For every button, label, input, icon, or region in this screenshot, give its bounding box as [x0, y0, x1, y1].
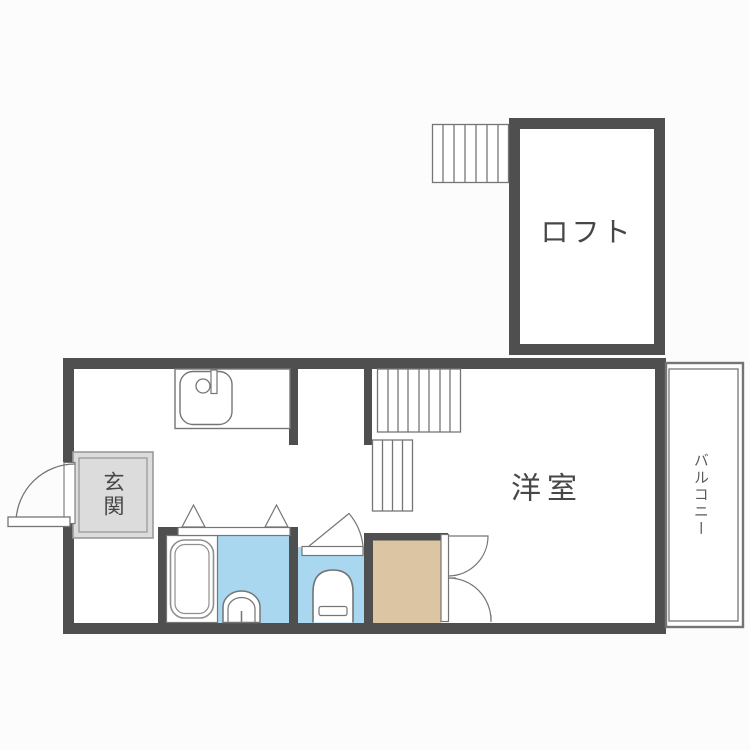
floorplan-drawing — [0, 0, 750, 750]
loft-label: ロフト — [540, 217, 633, 246]
stairs-hatch-icon-lower — [373, 440, 413, 511]
closet-floor — [373, 541, 441, 624]
entrance-swing-door-icon — [8, 463, 75, 527]
bathroom-toilet-divider-wall — [289, 527, 298, 623]
entrance-label: 玄関 — [102, 471, 124, 519]
closet-top-wall — [364, 533, 448, 541]
bathtub-icon — [171, 540, 214, 618]
bathroom-left-wall — [158, 527, 167, 623]
toilet-icon — [313, 570, 353, 623]
balcony-label: バルコニー — [692, 453, 708, 538]
kitchen-counter — [175, 369, 290, 429]
toilet-right-wall — [364, 533, 373, 623]
ladder-hatch-icon — [433, 125, 509, 183]
stairs-hatch-icon-upper — [378, 369, 461, 432]
partition-wall-stairs — [364, 369, 372, 445]
faucet-icon — [196, 379, 210, 393]
western-room-label: 洋室 — [511, 473, 583, 505]
faucet-lever-icon — [211, 370, 217, 394]
washbasin-icon — [223, 591, 260, 623]
floorplan-canvas: ロフト 洋室 玄関 バルコニー — [0, 0, 750, 750]
